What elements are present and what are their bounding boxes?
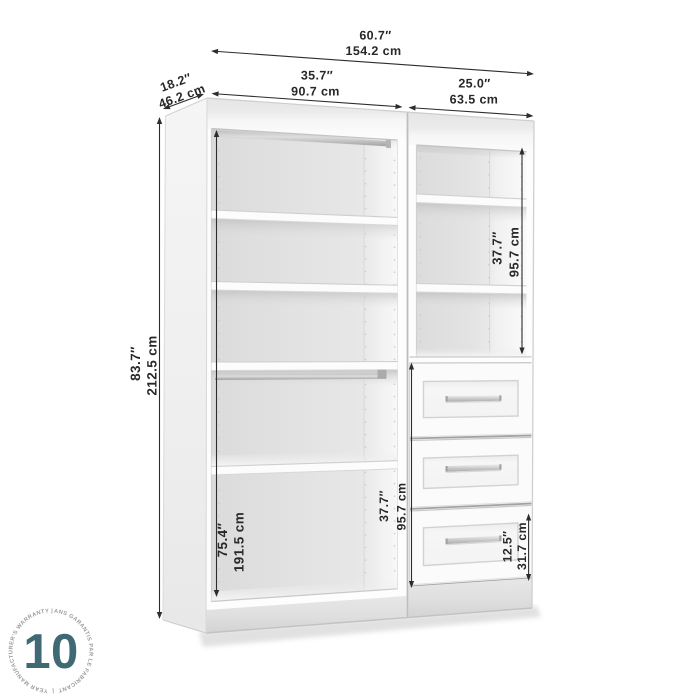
svg-text:95.7 cm: 95.7 cm	[395, 483, 409, 531]
svg-text:83.7″: 83.7″	[128, 346, 143, 381]
svg-text:25.0″: 25.0″	[458, 77, 490, 91]
svg-text:191.5 cm: 191.5 cm	[232, 512, 247, 572]
svg-text:12.5″: 12.5″	[501, 531, 515, 563]
svg-text:63.5 cm: 63.5 cm	[450, 93, 499, 107]
svg-text:95.7 cm: 95.7 cm	[507, 227, 522, 278]
svg-text:60.7″: 60.7″	[359, 29, 391, 43]
svg-text:37.7″: 37.7″	[377, 490, 391, 522]
svg-text:10: 10	[23, 625, 78, 679]
svg-text:31.7 cm: 31.7 cm	[515, 522, 529, 570]
svg-text:35.7″: 35.7″	[301, 69, 333, 83]
svg-text:212.5 cm: 212.5 cm	[145, 335, 160, 395]
svg-text:90.7 cm: 90.7 cm	[291, 85, 340, 99]
svg-text:75.4″: 75.4″	[215, 523, 230, 558]
svg-text:154.2 cm: 154.2 cm	[345, 44, 401, 58]
svg-text:37.7″: 37.7″	[490, 231, 505, 265]
